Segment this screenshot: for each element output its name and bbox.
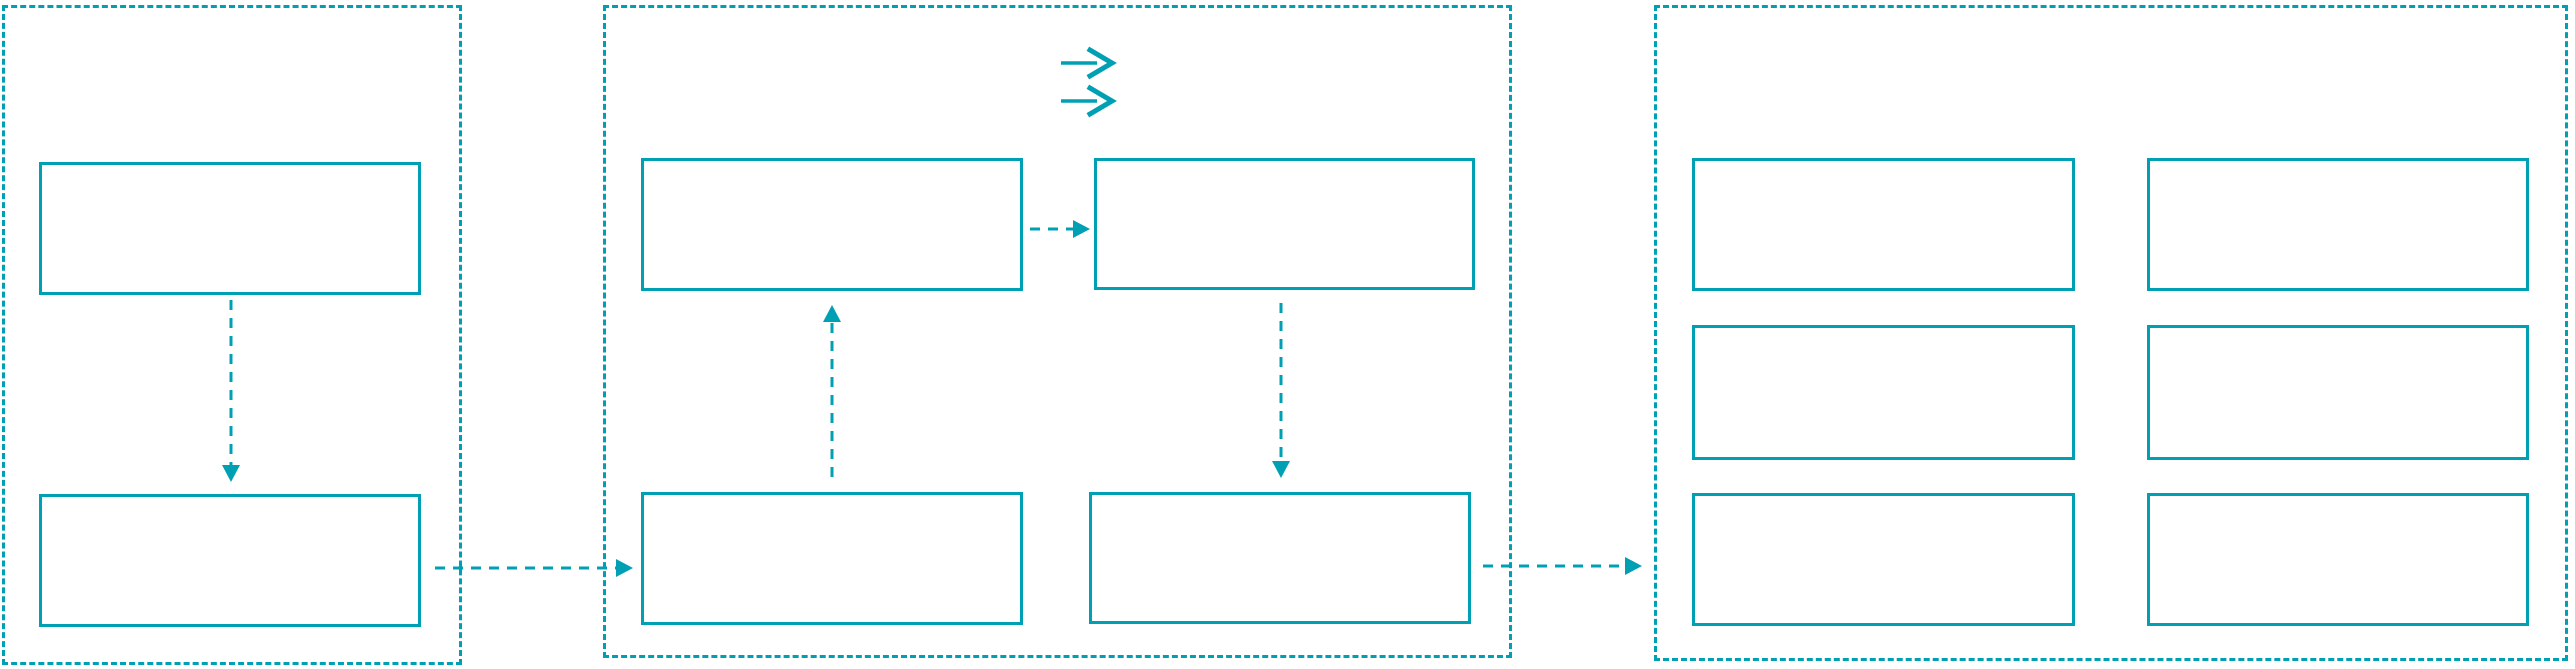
right-box-row3-col2 (2147, 493, 2529, 626)
right-box-row2-col1 (1692, 325, 2075, 460)
right-box-row3-col1 (1692, 493, 2075, 626)
left-top-box (39, 162, 421, 295)
middle-group-container (603, 5, 1512, 658)
right-group-container (1654, 5, 2568, 661)
left-bottom-box (39, 494, 421, 627)
right-box-row1-col1 (1692, 158, 2075, 291)
middle-top-right-box (1094, 158, 1475, 290)
middle-bottom-right-box (1089, 492, 1471, 624)
middle-top-left-box (641, 158, 1023, 291)
middle-bottom-left-box (641, 492, 1023, 625)
diagram-canvas (0, 0, 2575, 669)
right-box-row2-col2 (2147, 325, 2529, 460)
left-group-container (2, 5, 462, 665)
right-box-row1-col2 (2147, 158, 2529, 291)
